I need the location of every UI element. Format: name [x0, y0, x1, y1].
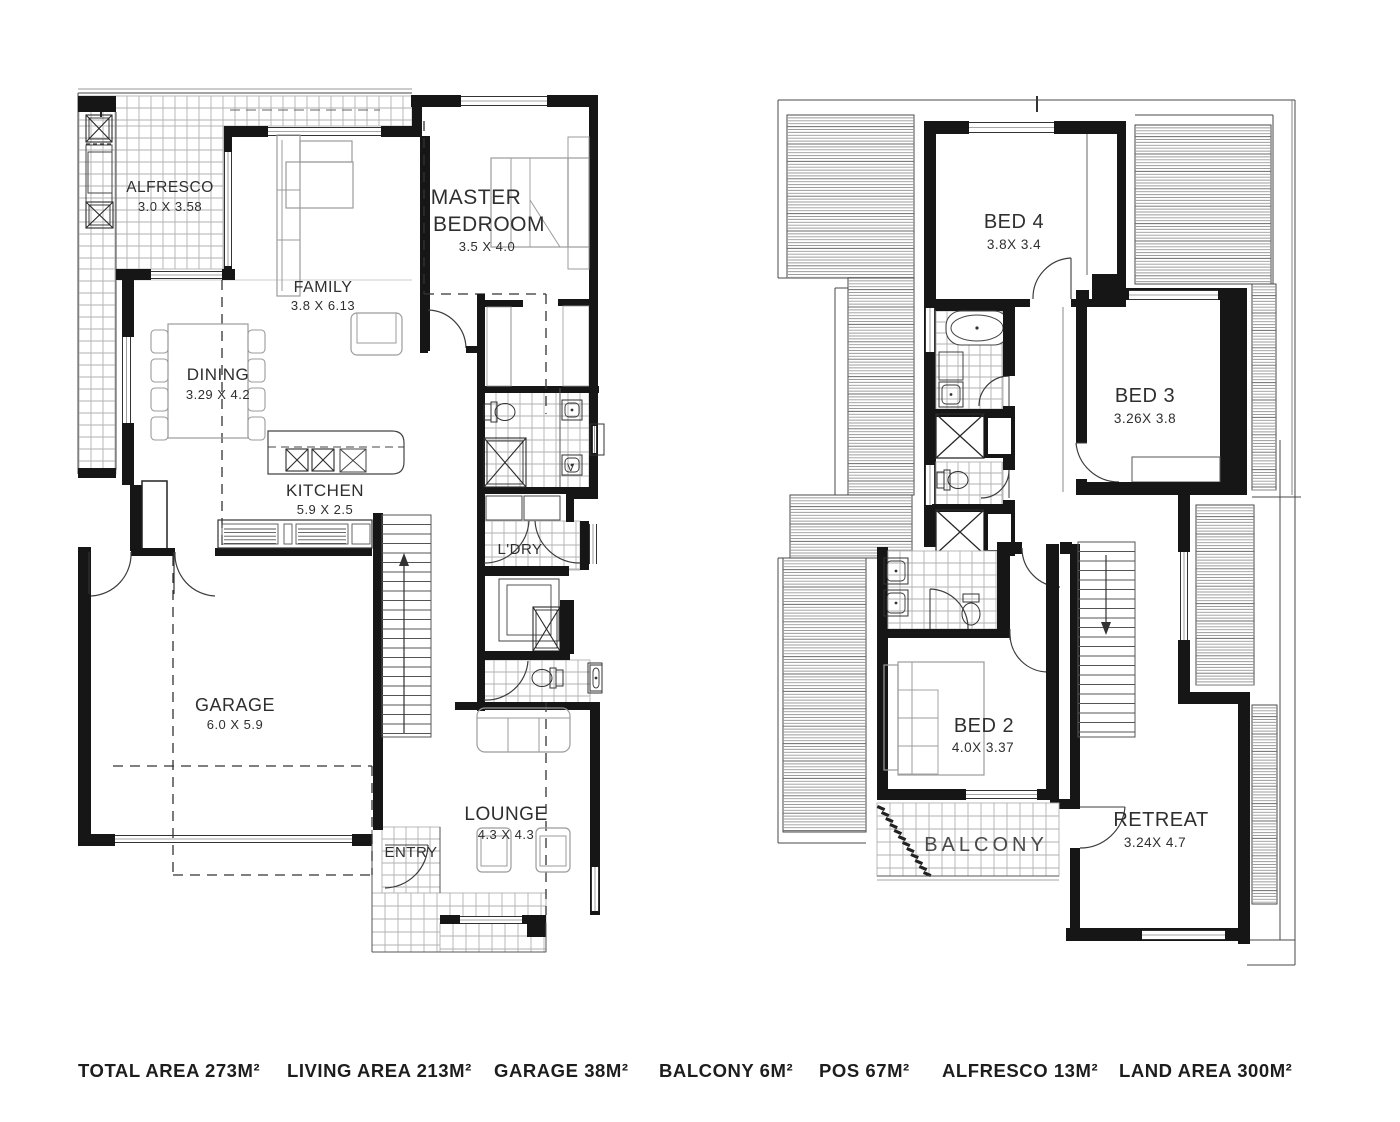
svg-text:BALCONY 6M²: BALCONY 6M² [659, 1060, 793, 1081]
svg-text:6.0 X 5.9: 6.0 X 5.9 [207, 717, 264, 732]
svg-text:5.9 X 2.5: 5.9 X 2.5 [297, 502, 354, 517]
svg-text:LAND AREA 300M²: LAND AREA 300M² [1119, 1060, 1292, 1081]
svg-text:3.24X 4.7: 3.24X 4.7 [1124, 835, 1186, 850]
svg-text:L'DRY: L'DRY [497, 541, 542, 558]
svg-text:4.0X 3.37: 4.0X 3.37 [952, 740, 1014, 755]
svg-text:LIVING AREA 213M²: LIVING AREA 213M² [287, 1060, 472, 1081]
svg-text:MASTER: MASTER [431, 186, 522, 209]
svg-text:3.5 X 4.0: 3.5 X 4.0 [459, 239, 516, 254]
svg-text:BED 4: BED 4 [984, 211, 1044, 233]
svg-text:GARAGE 38M²: GARAGE 38M² [494, 1060, 629, 1081]
svg-text:BED 2: BED 2 [954, 715, 1014, 737]
svg-text:ENTRY: ENTRY [384, 844, 437, 861]
svg-text:GARAGE: GARAGE [195, 695, 275, 715]
svg-text:KITCHEN: KITCHEN [286, 481, 364, 500]
svg-text:3.29 X 4.2: 3.29 X 4.2 [186, 387, 250, 402]
svg-text:V: V [567, 462, 575, 474]
svg-text:3.0 X 3.58: 3.0 X 3.58 [138, 199, 202, 214]
svg-text:ALFRESCO 13M²: ALFRESCO 13M² [942, 1060, 1098, 1081]
svg-text:3.26X 3.8: 3.26X 3.8 [1114, 411, 1176, 426]
svg-text:TOTAL AREA 273M²: TOTAL AREA 273M² [78, 1060, 260, 1081]
svg-text:4.3 X 4.3: 4.3 X 4.3 [478, 827, 535, 842]
svg-text:BED 3: BED 3 [1115, 385, 1175, 407]
svg-text:FAMILY: FAMILY [294, 279, 353, 296]
svg-text:DINING: DINING [187, 365, 250, 384]
svg-text:POS 67M²: POS 67M² [819, 1060, 910, 1081]
svg-text:LOUNGE: LOUNGE [464, 804, 547, 825]
svg-text:ALFRESCO: ALFRESCO [126, 179, 214, 196]
svg-text:BALCONY: BALCONY [924, 834, 1048, 856]
svg-text:RETREAT: RETREAT [1113, 809, 1208, 831]
svg-text:3.8 X 6.13: 3.8 X 6.13 [291, 298, 355, 313]
svg-text:3.8X 3.4: 3.8X 3.4 [987, 237, 1041, 252]
svg-text:BEDROOM: BEDROOM [433, 213, 545, 236]
